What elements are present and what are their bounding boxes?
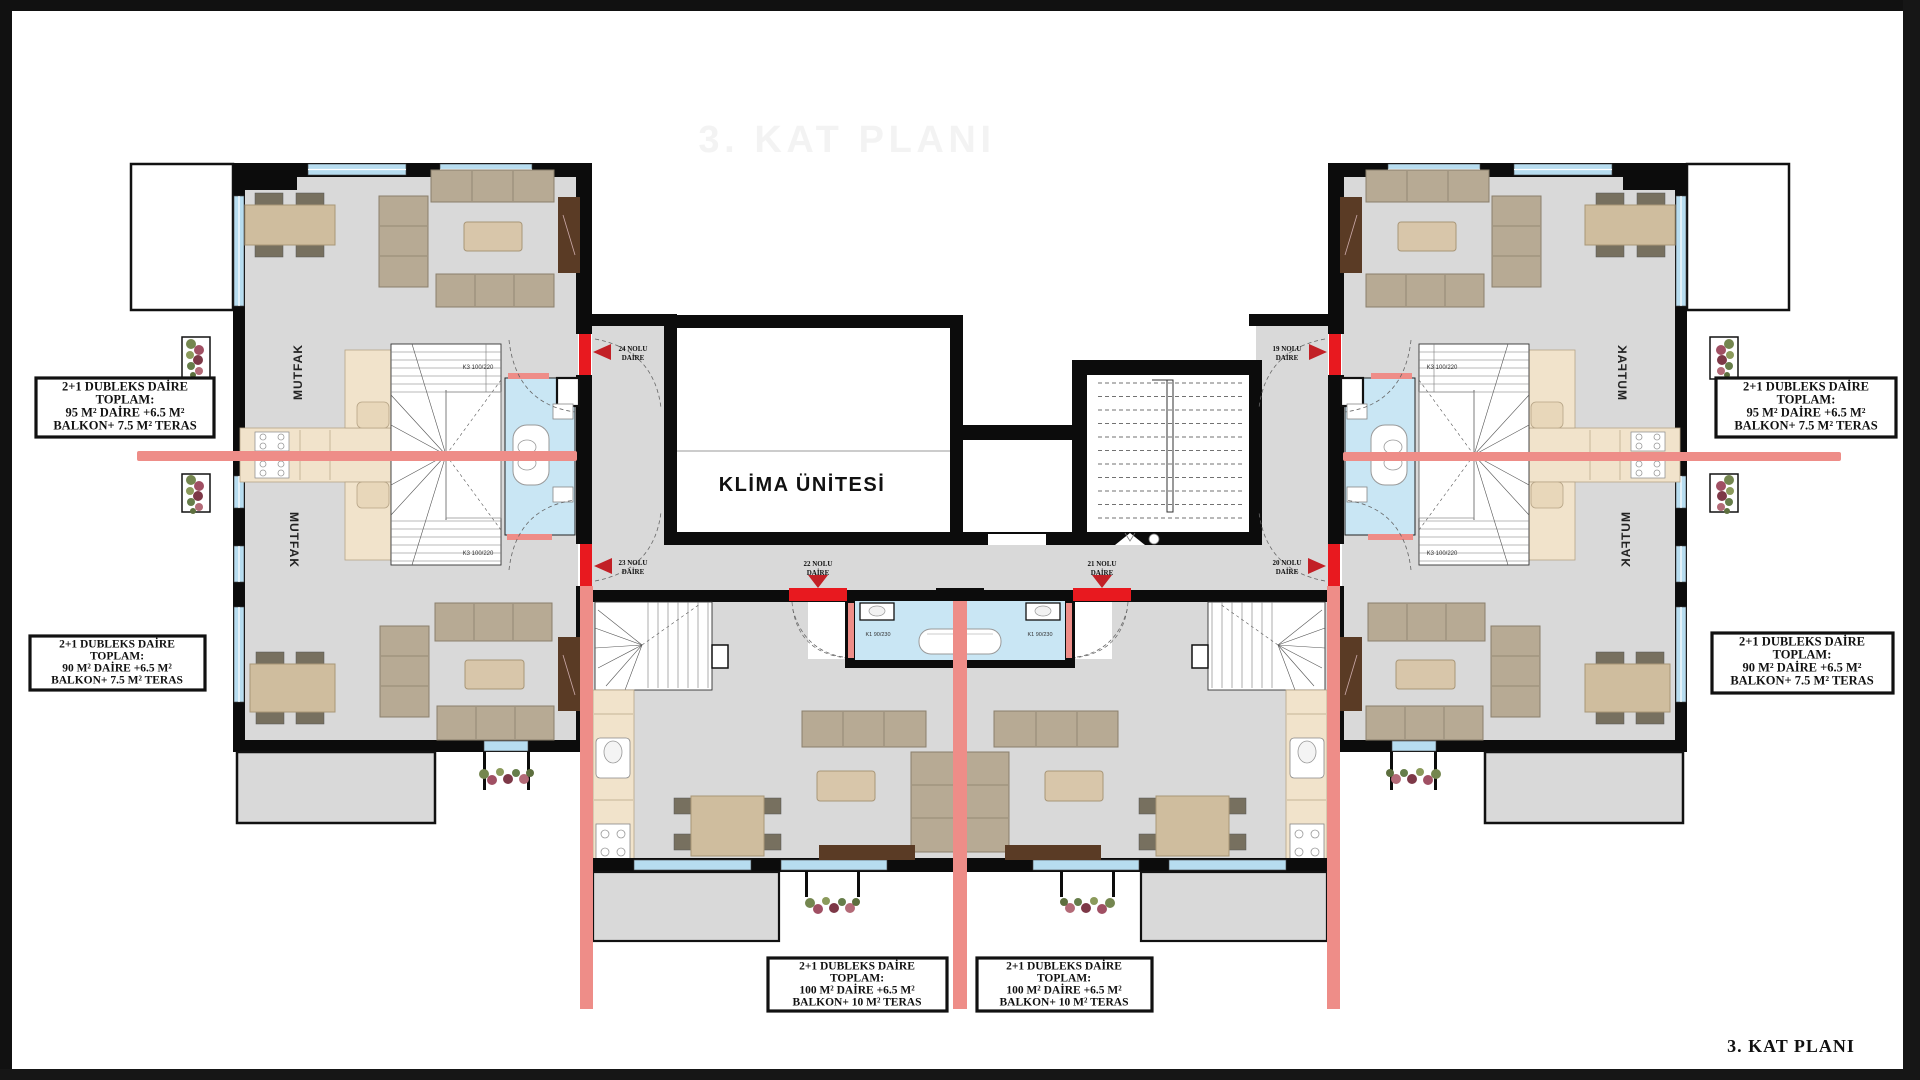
svg-text:100 M² DAİRE +6.5 M²: 100 M² DAİRE +6.5 M² xyxy=(1006,983,1122,997)
svg-text:22 NOLU: 22 NOLU xyxy=(804,560,833,568)
svg-text:95 M² DAİRE +6.5 M²: 95 M² DAİRE +6.5 M² xyxy=(1746,406,1865,420)
svg-text:DAİRE: DAİRE xyxy=(1276,568,1299,576)
svg-text:2+1 DUBLEKS DAİRE: 2+1 DUBLEKS DAİRE xyxy=(799,959,915,973)
svg-text:K3 100/220: K3 100/220 xyxy=(463,365,494,371)
svg-text:K3 100/220: K3 100/220 xyxy=(1427,365,1458,371)
svg-text:DAİRE: DAİRE xyxy=(807,569,830,577)
svg-text:KLİMA ÜNİTESİ: KLİMA ÜNİTESİ xyxy=(719,473,886,496)
svg-text:90 M² DAİRE +6.5 M²: 90 M² DAİRE +6.5 M² xyxy=(62,661,172,675)
svg-text:24 NOLU: 24 NOLU xyxy=(619,345,648,353)
svg-text:MUTFAK: MUTFAK xyxy=(291,344,305,400)
svg-text:BALKON+ 10 M² TERAS: BALKON+ 10 M² TERAS xyxy=(1000,997,1129,1009)
svg-text:19 NOLU: 19 NOLU xyxy=(1273,345,1302,353)
svg-text:BALKON+ 7.5 M² TERAS: BALKON+ 7.5 M² TERAS xyxy=(53,419,196,433)
svg-text:BALKON+ 7.5 M² TERAS: BALKON+ 7.5 M² TERAS xyxy=(51,675,183,687)
svg-text:K3 100/220: K3 100/220 xyxy=(1427,551,1458,557)
svg-text:DAİRE: DAİRE xyxy=(1276,354,1299,362)
svg-text:23 NOLU: 23 NOLU xyxy=(619,559,648,567)
svg-text:TOPLAM:: TOPLAM: xyxy=(830,973,884,985)
svg-text:20 NOLU: 20 NOLU xyxy=(1273,559,1302,567)
svg-text:100 M² DAİRE +6.5 M²: 100 M² DAİRE +6.5 M² xyxy=(799,983,915,997)
svg-text:TOPLAM:: TOPLAM: xyxy=(90,651,144,663)
svg-text:DAİRE: DAİRE xyxy=(622,354,645,362)
svg-text:90 M² DAİRE +6.5 M²: 90 M² DAİRE +6.5 M² xyxy=(1742,661,1861,675)
svg-text:2+1 DUBLEKS DAİRE: 2+1 DUBLEKS DAİRE xyxy=(62,380,188,394)
svg-text:2+1 DUBLEKS DAİRE: 2+1 DUBLEKS DAİRE xyxy=(59,637,175,651)
svg-text:TOPLAM:: TOPLAM: xyxy=(1777,393,1836,407)
svg-text:BALKON+ 7.5 M² TERAS: BALKON+ 7.5 M² TERAS xyxy=(1730,674,1873,688)
svg-text:TOPLAM:: TOPLAM: xyxy=(1773,648,1832,662)
svg-text:BALKON+ 7.5 M² TERAS: BALKON+ 7.5 M² TERAS xyxy=(1734,419,1877,433)
svg-text:2+1 DUBLEKS DAİRE: 2+1 DUBLEKS DAİRE xyxy=(1743,380,1869,394)
svg-text:MUTFAK: MUTFAK xyxy=(287,512,301,568)
svg-text:95 M² DAİRE +6.5 M²: 95 M² DAİRE +6.5 M² xyxy=(65,406,184,420)
svg-text:TOPLAM:: TOPLAM: xyxy=(1037,973,1091,985)
svg-text:K3 100/220: K3 100/220 xyxy=(463,551,494,557)
svg-text:3. KAT PLANI: 3. KAT PLANI xyxy=(698,119,995,161)
svg-text:3. KAT PLANI: 3. KAT PLANI xyxy=(1727,1036,1855,1056)
svg-text:2+1 DUBLEKS DAİRE: 2+1 DUBLEKS DAİRE xyxy=(1006,959,1122,973)
svg-text:TOPLAM:: TOPLAM: xyxy=(96,393,155,407)
svg-text:2+1 DUBLEKS DAİRE: 2+1 DUBLEKS DAİRE xyxy=(1739,635,1865,649)
svg-text:DAİRE: DAİRE xyxy=(1091,569,1114,577)
svg-text:BALKON+ 10 M² TERAS: BALKON+ 10 M² TERAS xyxy=(793,997,922,1009)
svg-text:K1 90/230: K1 90/230 xyxy=(865,632,890,638)
svg-text:K1 90/230: K1 90/230 xyxy=(1027,632,1052,638)
svg-text:21 NOLU: 21 NOLU xyxy=(1088,560,1117,568)
svg-text:DAİRE: DAİRE xyxy=(622,568,645,576)
